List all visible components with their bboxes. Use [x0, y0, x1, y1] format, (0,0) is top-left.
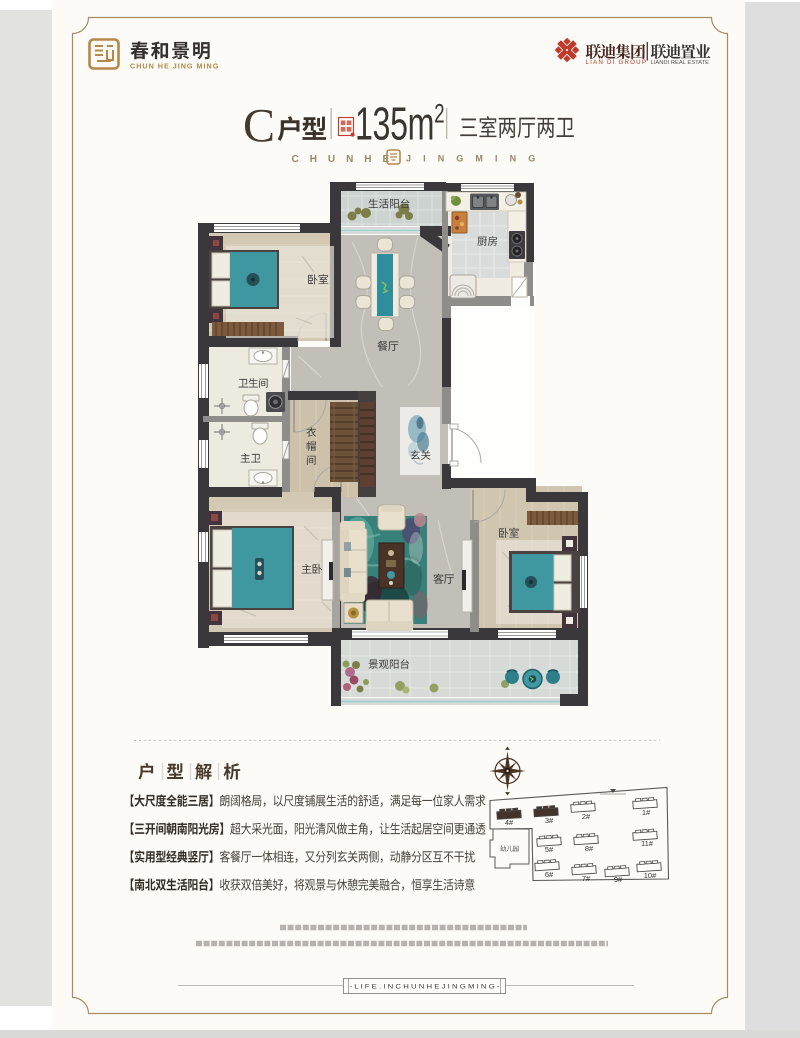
- svg-text:5#: 5#: [545, 845, 554, 854]
- svg-text:6#: 6#: [545, 870, 554, 879]
- svg-text:CHUN HE JING MING: CHUN HE JING MING: [130, 62, 219, 71]
- svg-text:9#: 9#: [614, 875, 623, 884]
- svg-text:J I N G M I N G: J I N G M I N G: [406, 154, 540, 164]
- svg-text:8#: 8#: [585, 844, 594, 853]
- svg-text:135m2: 135m2: [355, 98, 444, 150]
- svg-text:2#: 2#: [582, 812, 591, 821]
- svg-text:11#: 11#: [641, 839, 654, 848]
- svg-text:LIANDI REAL ESTATE: LIANDI REAL ESTATE: [651, 60, 710, 66]
- svg-text:1#: 1#: [642, 808, 651, 817]
- svg-text:C: C: [243, 100, 275, 153]
- svg-text:4#: 4#: [505, 818, 514, 827]
- svg-text:LIAN DI GROUP: LIAN DI GROUP: [586, 59, 648, 66]
- svg-text:7#: 7#: [582, 874, 591, 883]
- svg-text:3#: 3#: [545, 816, 554, 825]
- svg-text:10#: 10#: [644, 871, 657, 880]
- svg-text:C H U N H E: C H U N H E: [292, 154, 394, 165]
- svg-text:- L I F E . I N C H U N H E: - L I F E . I N C H U N H E J I N G M I …: [350, 984, 500, 991]
